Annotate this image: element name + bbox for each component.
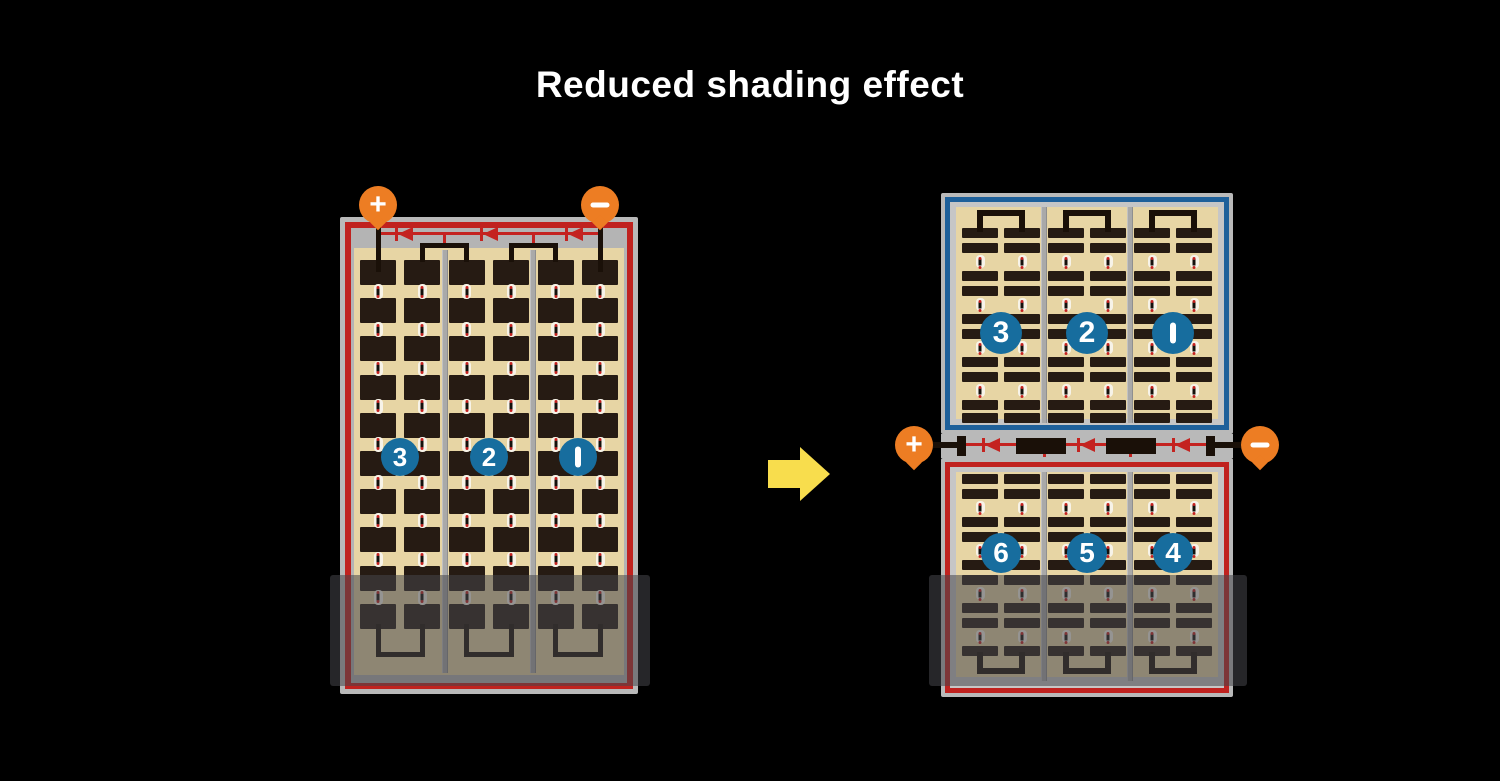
transition-arrow-head — [800, 447, 830, 501]
solar-cell — [493, 527, 529, 552]
solar-cell — [538, 413, 574, 438]
solar-cell — [449, 375, 485, 400]
half-cut-cell — [1004, 357, 1040, 367]
half-cut-cell — [1090, 489, 1126, 499]
cell-interconnect — [418, 399, 427, 414]
half-cut-cell — [1176, 474, 1212, 484]
solar-cell — [538, 298, 574, 323]
solar-cell — [538, 260, 574, 285]
half-cut-cell — [1176, 357, 1212, 367]
solar-cell — [404, 375, 440, 400]
cell-interconnect — [418, 437, 427, 452]
cell-interconnect — [551, 437, 560, 452]
half-cut-cell — [1176, 271, 1212, 281]
cell-interconnect — [976, 298, 985, 311]
half-cut-cell — [962, 286, 998, 296]
left-string-3-badge: 3 — [381, 438, 419, 476]
solar-cell — [449, 336, 485, 361]
solar-cell — [493, 298, 529, 323]
half-cut-cell — [962, 271, 998, 281]
solar-cell — [538, 336, 574, 361]
half-cut-cell — [1004, 517, 1040, 527]
half-cut-cell — [1004, 400, 1040, 410]
diode-triangle-icon — [398, 227, 413, 241]
right-top-string-3-badge: 3 — [980, 312, 1022, 354]
diagram-title: Reduced shading effect — [0, 64, 1500, 106]
cell-interconnect — [462, 475, 471, 490]
top-jumper-wire — [509, 243, 558, 248]
cell-interconnect — [507, 475, 516, 490]
cell-interconnect — [596, 361, 605, 376]
half-cut-cell — [1176, 372, 1212, 382]
cell-interconnect — [1190, 384, 1199, 397]
half-cell-jumper-wire — [977, 210, 1025, 216]
cell-interconnect — [1062, 501, 1071, 514]
cell-interconnect — [418, 513, 427, 528]
solar-cell — [360, 336, 396, 361]
half-cut-cell — [1048, 372, 1084, 382]
half-cut-cell — [1004, 489, 1040, 499]
cell-interconnect — [418, 361, 427, 376]
solar-cell — [360, 527, 396, 552]
half-cut-cell — [1134, 243, 1170, 253]
solar-cell — [360, 413, 396, 438]
half-cell-jumper-leg — [1191, 210, 1197, 232]
half-cut-cell — [1176, 489, 1212, 499]
diode-triangle-icon — [1080, 438, 1095, 452]
diode-triangle-icon — [568, 227, 583, 241]
cell-interconnect — [1104, 384, 1113, 397]
cell-interconnect — [1148, 501, 1157, 514]
half-cut-cell — [962, 489, 998, 499]
cell-interconnect — [1148, 298, 1157, 311]
half-cut-cell — [1048, 357, 1084, 367]
cell-interconnect — [1018, 501, 1027, 514]
bypass-diode-icon — [395, 227, 414, 241]
solar-cell — [582, 375, 618, 400]
cell-interconnect — [1062, 298, 1071, 311]
half-cut-cell — [1090, 372, 1126, 382]
cell-interconnect — [551, 284, 560, 299]
solar-cell — [449, 489, 485, 514]
solar-cell — [582, 489, 618, 514]
cell-interconnect — [551, 399, 560, 414]
cell-interconnect — [596, 552, 605, 567]
cell-interconnect — [551, 475, 560, 490]
solar-cell — [493, 260, 529, 285]
half-cut-cell — [1004, 271, 1040, 281]
diode-triangle-icon — [1175, 438, 1190, 452]
half-cut-cell — [1090, 474, 1126, 484]
cell-interconnect — [596, 475, 605, 490]
cell-interconnect — [374, 399, 383, 414]
top-jumper-leg — [553, 243, 558, 262]
bypass-diode-icon — [982, 438, 1001, 452]
half-cut-cell — [1090, 271, 1126, 281]
solar-cell — [538, 489, 574, 514]
cell-interconnect — [1148, 255, 1157, 268]
right-top-string-2-badge: 2 — [1066, 312, 1108, 354]
half-cut-cell — [1048, 474, 1084, 484]
cell-interconnect — [1190, 298, 1199, 311]
cell-interconnect — [976, 501, 985, 514]
solar-cell — [404, 336, 440, 361]
right-top-string-1-badge: 1 — [1152, 312, 1194, 354]
solar-cell — [582, 413, 618, 438]
cell-interconnect — [462, 513, 471, 528]
plus-icon: + — [905, 430, 923, 460]
cell-interconnect — [507, 552, 516, 567]
cell-interconnect — [976, 255, 985, 268]
top-jumper-leg — [464, 243, 469, 262]
half-cut-cell — [1134, 372, 1170, 382]
half-cell-jumper-leg — [1063, 210, 1069, 232]
half-cut-cell — [1048, 413, 1084, 423]
half-cut-cell — [1048, 489, 1084, 499]
cell-interconnect — [596, 513, 605, 528]
cell-interconnect — [1018, 298, 1027, 311]
half-cut-cell — [1090, 413, 1126, 423]
solar-cell — [449, 298, 485, 323]
half-cut-cell — [1004, 286, 1040, 296]
cell-interconnect — [1190, 501, 1199, 514]
half-cut-cell — [962, 474, 998, 484]
cell-interconnect — [596, 284, 605, 299]
bus-wire-segment — [1016, 438, 1066, 454]
cell-interconnect — [1018, 384, 1027, 397]
cell-interconnect — [551, 552, 560, 567]
right-column-divider — [1041, 207, 1047, 423]
cell-interconnect — [462, 361, 471, 376]
cell-interconnect — [418, 475, 427, 490]
diode-triangle-icon — [985, 438, 1000, 452]
half-cell-jumper-leg — [1019, 210, 1025, 232]
solar-cell — [493, 375, 529, 400]
half-cut-cell — [1048, 400, 1084, 410]
bus-end-bar — [957, 436, 966, 456]
cell-interconnect — [596, 437, 605, 452]
cell-interconnect — [1104, 255, 1113, 268]
right-bottom-string-5-badge: 5 — [1067, 533, 1107, 573]
minus-icon: − — [1251, 430, 1269, 460]
half-cut-cell — [962, 357, 998, 367]
solar-cell — [582, 336, 618, 361]
half-cell-jumper-leg — [1149, 210, 1155, 232]
solar-cell — [493, 413, 529, 438]
top-jumper-leg — [420, 243, 425, 262]
cell-interconnect — [462, 437, 471, 452]
plus-icon: + — [369, 190, 387, 220]
half-cut-cell — [1048, 271, 1084, 281]
left-string-2-badge: 2 — [470, 438, 508, 476]
half-cut-cell — [1004, 413, 1040, 423]
cell-interconnect — [462, 552, 471, 567]
solar-cell — [404, 527, 440, 552]
right-bottom-string-4-badge: 4 — [1153, 533, 1193, 573]
top-jumper-wire — [420, 243, 469, 248]
half-cut-cell — [1176, 413, 1212, 423]
solar-cell — [449, 413, 485, 438]
cell-interconnect — [1062, 255, 1071, 268]
cell-interconnect — [462, 399, 471, 414]
top-jumper-leg — [509, 243, 514, 262]
left-string-1-badge: 1 — [559, 438, 597, 476]
half-cut-cell — [962, 243, 998, 253]
left-shading-overlay — [330, 575, 650, 686]
half-cut-cell — [962, 413, 998, 423]
half-cut-cell — [1134, 489, 1170, 499]
cell-interconnect — [507, 284, 516, 299]
diagram-canvas: Reduced shading effect + − 3 2 1 + − 3 2… — [0, 0, 1500, 781]
solar-cell — [449, 260, 485, 285]
cell-interconnect — [596, 399, 605, 414]
half-cut-cell — [1134, 286, 1170, 296]
solar-cell — [493, 336, 529, 361]
solar-cell — [360, 375, 396, 400]
half-cut-cell — [1176, 400, 1212, 410]
positive-lead-wire — [932, 442, 958, 448]
bypass-diode-icon — [565, 227, 584, 241]
half-cell-jumper-leg — [977, 210, 983, 232]
half-cut-cell — [1176, 286, 1212, 296]
right-bottom-string-6-badge: 6 — [981, 533, 1021, 573]
solar-cell — [360, 298, 396, 323]
right-negative-terminal: − — [1241, 426, 1279, 464]
cell-interconnect — [507, 399, 516, 414]
cell-interconnect — [596, 322, 605, 337]
solar-cell — [538, 375, 574, 400]
cell-interconnect — [418, 552, 427, 567]
left-positive-terminal: + — [359, 186, 397, 224]
solar-cell — [404, 489, 440, 514]
half-cut-cell — [1176, 243, 1212, 253]
cell-interconnect — [374, 322, 383, 337]
cell-interconnect — [418, 322, 427, 337]
half-cut-cell — [1134, 413, 1170, 423]
bypass-diode-icon — [480, 227, 499, 241]
cell-interconnect — [462, 322, 471, 337]
cell-interconnect — [374, 284, 383, 299]
half-cut-cell — [1048, 517, 1084, 527]
half-cut-cell — [1090, 517, 1126, 527]
cell-interconnect — [507, 361, 516, 376]
cell-interconnect — [976, 384, 985, 397]
cell-interconnect — [1190, 255, 1199, 268]
half-cut-cell — [1048, 286, 1084, 296]
cell-interconnect — [507, 322, 516, 337]
cell-interconnect — [551, 513, 560, 528]
cell-interconnect — [507, 437, 516, 452]
solar-cell — [538, 527, 574, 552]
half-cut-cell — [1004, 474, 1040, 484]
half-cut-cell — [1134, 400, 1170, 410]
half-cut-cell — [1090, 286, 1126, 296]
solar-cell — [582, 298, 618, 323]
half-cut-cell — [1004, 243, 1040, 253]
half-cell-jumper-leg — [1105, 210, 1111, 232]
half-cut-cell — [1176, 517, 1212, 527]
solar-cell — [360, 489, 396, 514]
cell-interconnect — [418, 284, 427, 299]
cell-interconnect — [1018, 255, 1027, 268]
solar-cell — [582, 527, 618, 552]
half-cut-cell — [1048, 243, 1084, 253]
cell-interconnect — [1104, 501, 1113, 514]
cell-interconnect — [1062, 384, 1071, 397]
minus-icon: − — [591, 190, 609, 220]
half-cut-cell — [1134, 517, 1170, 527]
bus-wire-segment — [1106, 438, 1156, 454]
bypass-diode-icon — [1077, 438, 1096, 452]
solar-cell — [404, 298, 440, 323]
diode-triangle-icon — [483, 227, 498, 241]
cell-interconnect — [374, 552, 383, 567]
cell-interconnect — [374, 361, 383, 376]
cell-interconnect — [551, 322, 560, 337]
cell-interconnect — [1104, 298, 1113, 311]
right-shading-overlay — [929, 575, 1247, 686]
left-negative-terminal: − — [581, 186, 619, 224]
solar-cell — [449, 527, 485, 552]
solar-cell — [404, 413, 440, 438]
negative-lead-wire — [1215, 442, 1241, 448]
cell-interconnect — [1148, 384, 1157, 397]
half-cell-jumper-wire — [1063, 210, 1111, 216]
half-cut-cell — [1090, 357, 1126, 367]
half-cut-cell — [962, 517, 998, 527]
bypass-diode-icon — [1172, 438, 1191, 452]
transition-arrow — [768, 460, 801, 488]
half-cut-cell — [1090, 243, 1126, 253]
half-cut-cell — [1134, 474, 1170, 484]
cell-interconnect — [374, 475, 383, 490]
half-cut-cell — [962, 372, 998, 382]
solar-cell — [404, 260, 440, 285]
solar-cell — [493, 489, 529, 514]
bus-end-bar — [1206, 436, 1215, 456]
half-cut-cell — [1134, 271, 1170, 281]
cell-interconnect — [507, 513, 516, 528]
half-cut-cell — [962, 400, 998, 410]
half-cut-cell — [1090, 400, 1126, 410]
cell-interconnect — [462, 284, 471, 299]
half-cell-jumper-wire — [1149, 210, 1197, 216]
half-cut-cell — [1004, 372, 1040, 382]
cell-interconnect — [551, 361, 560, 376]
right-column-divider — [1127, 207, 1133, 423]
cell-interconnect — [374, 513, 383, 528]
half-cut-cell — [1134, 357, 1170, 367]
right-positive-terminal: + — [895, 426, 933, 464]
